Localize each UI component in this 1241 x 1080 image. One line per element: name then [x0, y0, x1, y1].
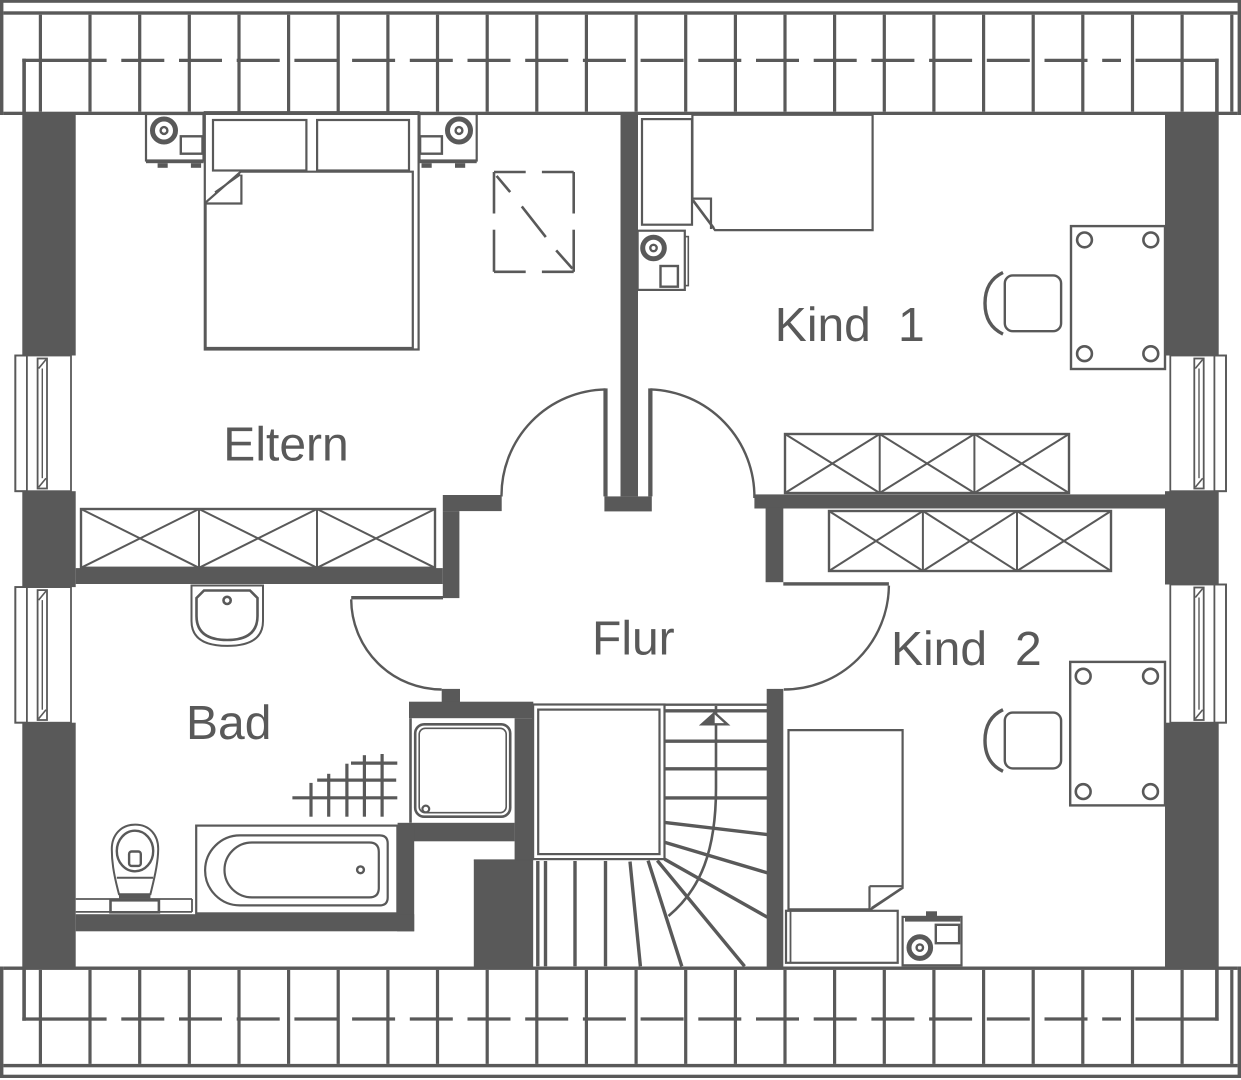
svg-text:Flur: Flur — [592, 613, 675, 666]
svg-text:Eltern: Eltern — [223, 419, 348, 472]
svg-text:Kind: Kind — [775, 299, 871, 352]
svg-text:1: 1 — [898, 299, 925, 352]
svg-text:Bad: Bad — [186, 697, 271, 750]
svg-text:2: 2 — [1015, 623, 1042, 676]
svg-text:Kind: Kind — [891, 623, 987, 676]
